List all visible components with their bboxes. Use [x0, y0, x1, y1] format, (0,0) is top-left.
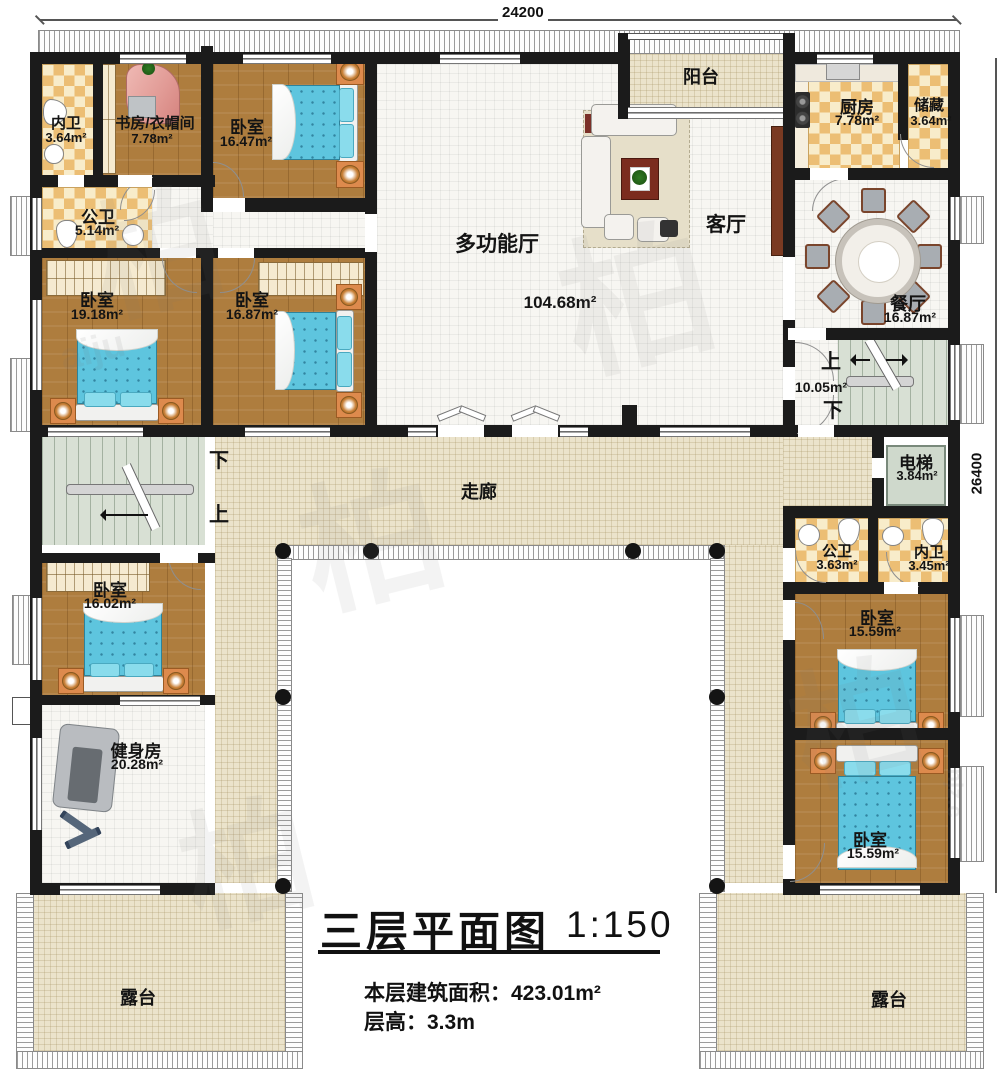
- stair-arrow: [104, 514, 148, 516]
- room-area: 19.18m²: [71, 306, 123, 322]
- elevator-door: [872, 458, 884, 478]
- nightstand: [163, 668, 189, 694]
- room-area: 20.28m²: [111, 756, 163, 772]
- pillow: [337, 352, 352, 387]
- window: [817, 54, 873, 64]
- window: [440, 54, 520, 64]
- eaves-band: [38, 30, 960, 54]
- door-opening: [58, 175, 84, 187]
- pillow: [844, 709, 876, 724]
- wall: [783, 33, 795, 119]
- pillow: [337, 316, 352, 350]
- room-label: 客厅: [706, 208, 746, 237]
- stair-arrow-head: [94, 509, 106, 521]
- room-label: 阳台: [683, 63, 719, 89]
- room-area: 15.59m²: [849, 623, 901, 639]
- door-opening: [438, 425, 484, 437]
- wall: [201, 258, 213, 425]
- window-sill: [12, 595, 32, 665]
- corridor-label: 走廊: [461, 478, 497, 504]
- pillow: [84, 392, 116, 407]
- door-opening: [884, 582, 918, 594]
- bed-headboard: [836, 745, 918, 762]
- window-sill: [960, 196, 984, 244]
- floor-height-value: 3.3m: [427, 1011, 475, 1034]
- sink: [882, 526, 904, 546]
- door-opening: [788, 328, 826, 340]
- dimension-top: 24200: [498, 4, 548, 21]
- pillow: [879, 761, 911, 776]
- window: [32, 598, 42, 680]
- window: [48, 427, 143, 437]
- courtyard-railing: [710, 558, 725, 892]
- column: [275, 543, 291, 559]
- corridor-top-floor: [215, 437, 783, 545]
- door-opening: [783, 257, 795, 320]
- wall: [783, 582, 960, 594]
- room-area: 7.78m²: [835, 112, 879, 128]
- window-sill: [10, 358, 32, 432]
- nightstand: [336, 161, 364, 188]
- door-opening: [512, 425, 558, 437]
- floor-height-line: 层高：3.3m: [364, 1006, 475, 1036]
- courtyard-railing: [277, 545, 725, 560]
- corridor-right-floor: [723, 545, 783, 883]
- column: [275, 689, 291, 705]
- terrace-right-floor: [712, 893, 968, 1051]
- room-area: 3.63m²: [816, 557, 857, 572]
- door-opening: [783, 367, 795, 400]
- wall: [783, 168, 948, 180]
- window: [820, 885, 920, 895]
- column: [709, 689, 725, 705]
- pillow: [844, 761, 876, 776]
- room-area: 16.87m²: [884, 309, 936, 325]
- sink: [798, 524, 820, 546]
- door-opening: [810, 168, 848, 180]
- pillow: [90, 663, 120, 677]
- courtyard-railing: [277, 558, 292, 892]
- window: [408, 427, 436, 437]
- room-area: 3.84m²: [896, 468, 937, 483]
- door-opening: [365, 214, 377, 252]
- wall: [783, 506, 960, 518]
- column: [709, 543, 725, 559]
- room-area: 16.02m²: [84, 595, 136, 611]
- chair: [805, 244, 830, 269]
- terrace-left-floor: [32, 893, 288, 1051]
- door-opening: [213, 198, 245, 212]
- chair: [861, 188, 886, 213]
- column: [275, 878, 291, 894]
- corridor-elevator-front: [783, 437, 872, 506]
- door-opening: [218, 248, 254, 258]
- room-area: 16.87m²: [226, 306, 278, 322]
- nightstand: [50, 398, 76, 424]
- terrace-left-edge: [285, 893, 303, 1069]
- terrace-right-edge: [699, 893, 717, 1069]
- door-opening: [783, 548, 795, 582]
- gym-opening: [120, 696, 200, 706]
- window: [60, 885, 160, 895]
- nightstand: [58, 668, 84, 694]
- door-opening: [798, 425, 834, 437]
- room-area: 5.14m²: [75, 222, 119, 238]
- wall: [93, 64, 103, 175]
- terrace-left-edge: [16, 1051, 303, 1069]
- window: [560, 427, 588, 437]
- accent-chair: [660, 220, 678, 237]
- chair: [917, 244, 942, 269]
- terrace-left-edge: [16, 893, 34, 1069]
- floor-area-value: 423.01m²: [511, 982, 601, 1005]
- room-label: 书房/衣帽间: [115, 112, 194, 133]
- door-opening: [783, 600, 795, 640]
- chair: [861, 300, 886, 325]
- window: [950, 197, 960, 240]
- stair-arrow-head: [902, 354, 914, 366]
- window-sill: [10, 196, 32, 256]
- stair-handrail: [846, 376, 914, 387]
- plant: [632, 170, 647, 185]
- bed-headboard: [82, 676, 164, 692]
- room-area: 15.59m²: [847, 845, 899, 861]
- window: [950, 618, 960, 712]
- title-underline: [318, 950, 660, 954]
- nightstand: [336, 284, 362, 310]
- stair-up-label: 上: [209, 498, 229, 527]
- pillow: [120, 392, 152, 407]
- dimension-line-right: [995, 58, 997, 893]
- terrace-label: 露台: [871, 986, 907, 1012]
- window: [32, 300, 42, 390]
- stair-down-label: 下: [823, 394, 843, 423]
- window: [120, 54, 186, 64]
- window-sill: [960, 615, 984, 717]
- stair-arrow-head: [844, 354, 856, 366]
- nightstand: [336, 392, 362, 418]
- stair-area-label: 10.05m²: [795, 379, 847, 395]
- window: [950, 768, 960, 858]
- window: [245, 427, 330, 437]
- floor-area-label: 本层建筑面积：: [364, 982, 511, 1005]
- floor-area-line: 本层建筑面积：423.01m²: [364, 977, 601, 1007]
- wall: [898, 64, 908, 140]
- pillow: [124, 663, 154, 677]
- stove: [795, 92, 810, 128]
- room-label: 储藏: [914, 94, 944, 115]
- stair-down-label: 下: [209, 444, 229, 473]
- pillow: [879, 709, 911, 724]
- wall-pier: [622, 405, 637, 437]
- balcony-rail: [628, 33, 783, 40]
- nightstand: [158, 398, 184, 424]
- wall: [30, 248, 377, 258]
- wall: [201, 46, 213, 212]
- balcony-window-band: [628, 107, 783, 119]
- door-opening: [160, 248, 196, 258]
- nightstand: [810, 748, 836, 774]
- room-area: 16.47m²: [220, 133, 272, 149]
- window-sill: [960, 766, 984, 862]
- window: [243, 54, 331, 64]
- corridor-left-floor: [215, 545, 277, 883]
- treadmill-belt: [67, 747, 102, 804]
- floor-height-label: 层高：: [364, 1011, 427, 1034]
- column: [709, 878, 725, 894]
- terrace-label: 露台: [120, 984, 156, 1010]
- door-opening: [783, 845, 795, 879]
- nightstand: [918, 748, 944, 774]
- pillow: [339, 124, 354, 158]
- room-area: 7.78m²: [131, 131, 172, 146]
- room-area: 3.64m²: [910, 113, 951, 128]
- window: [950, 345, 960, 420]
- room-area: 3.45m²: [908, 558, 949, 573]
- sink: [44, 144, 64, 164]
- door-opening: [162, 553, 198, 563]
- column: [625, 543, 641, 559]
- room-area: 3.64m²: [45, 130, 86, 145]
- room-label: 多功能厅: [455, 228, 539, 258]
- dimension-right: 26400: [968, 449, 985, 499]
- door-opening: [118, 175, 152, 187]
- window: [32, 198, 42, 250]
- room-area: 104.68m²: [524, 293, 597, 313]
- floor-plan-canvas: 24200 26400: [0, 0, 1000, 1078]
- column: [363, 543, 379, 559]
- window-sill: [960, 344, 984, 424]
- window: [32, 738, 42, 830]
- terrace-right-edge: [966, 893, 984, 1069]
- plan-scale: 1:150: [566, 904, 674, 946]
- wall: [783, 728, 960, 740]
- door-arc: [900, 134, 934, 168]
- stair-up-label: 上: [821, 345, 841, 374]
- armchair: [604, 214, 634, 240]
- sink: [122, 224, 144, 246]
- pillow: [339, 88, 354, 122]
- window: [660, 427, 750, 437]
- terrace-right-edge: [699, 1051, 984, 1069]
